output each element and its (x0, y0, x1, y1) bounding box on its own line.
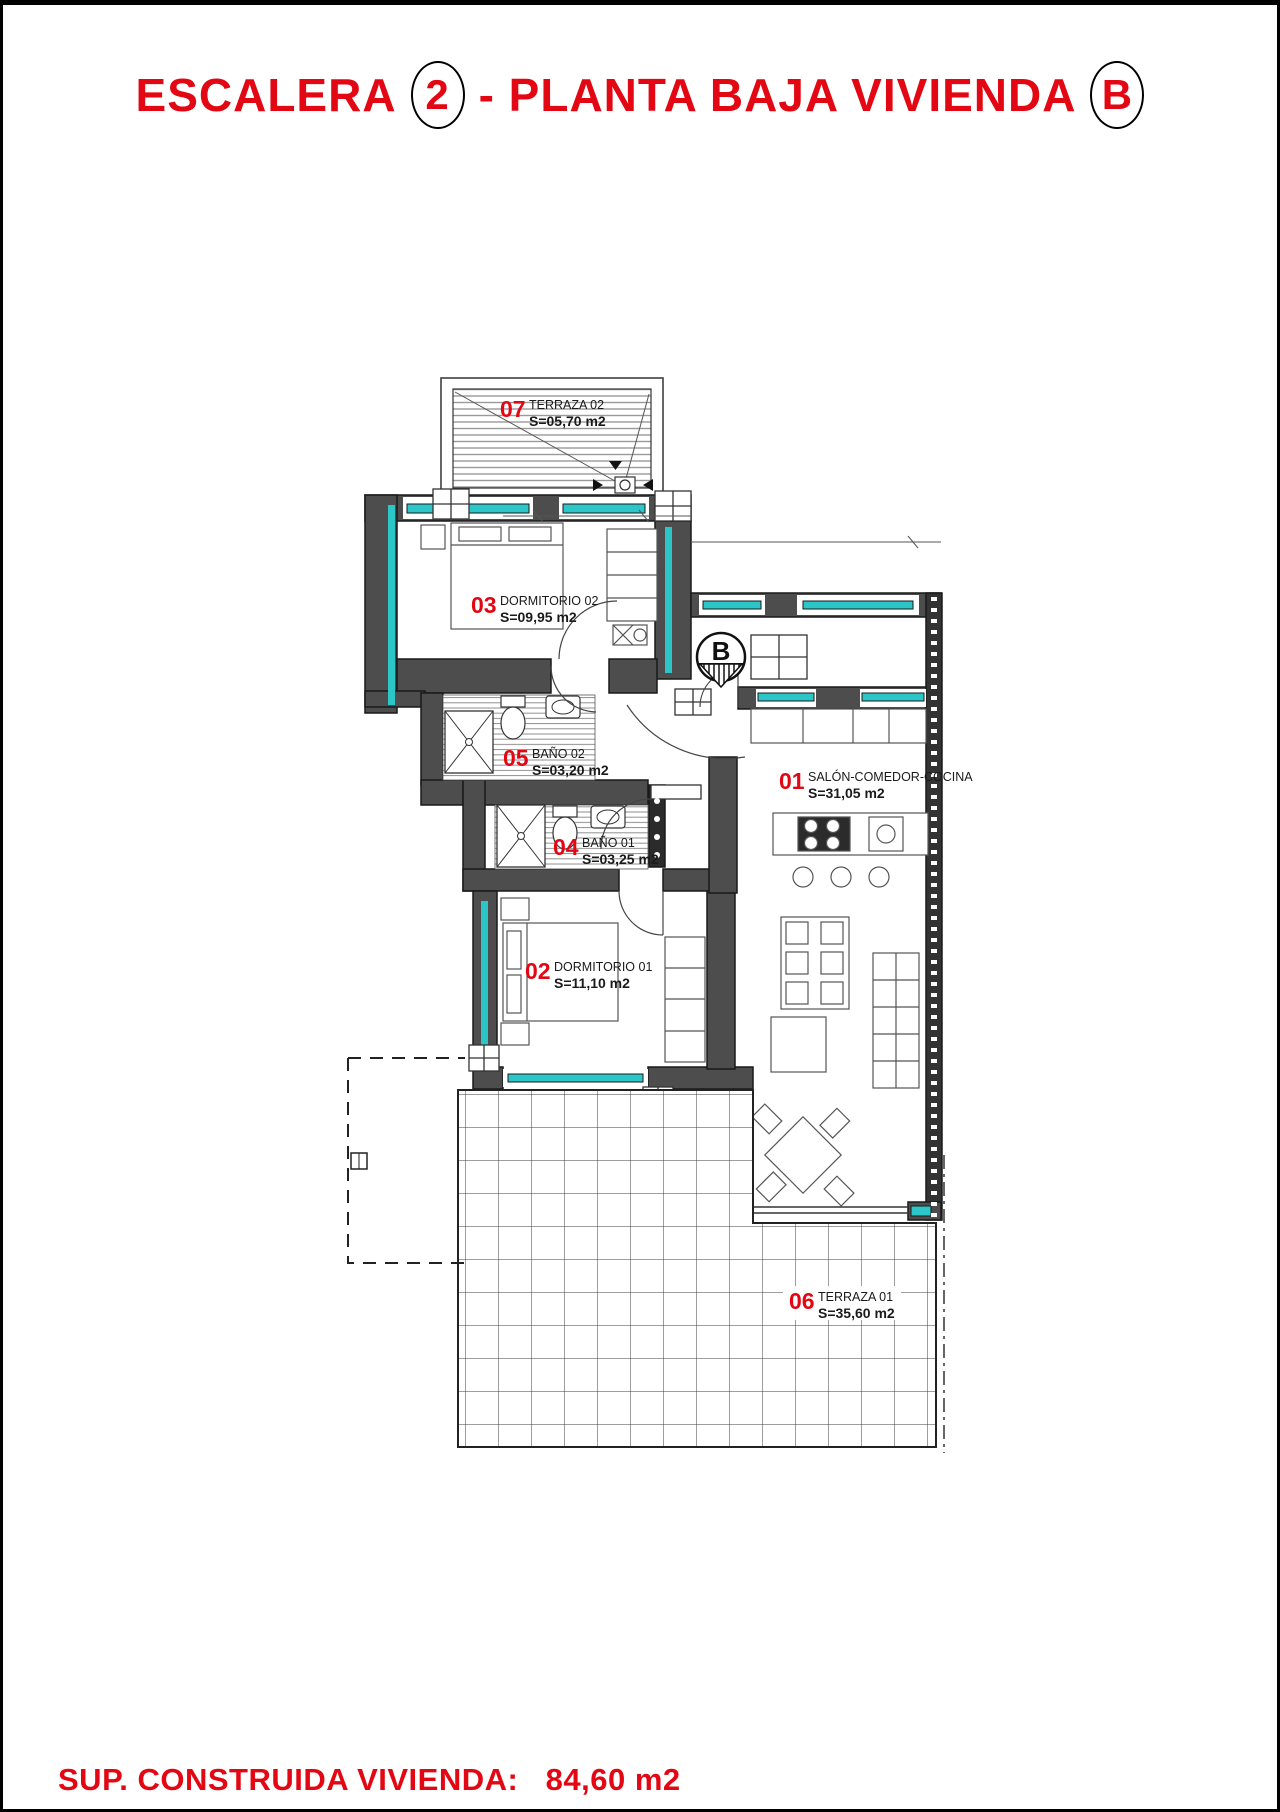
terraza-01 (458, 1090, 944, 1453)
wardrobe (665, 937, 705, 1062)
bar-stool (793, 867, 813, 887)
svg-text:DORMITORIO 02: DORMITORIO 02 (500, 594, 598, 608)
svg-text:03: 03 (471, 592, 497, 618)
toilet (501, 696, 525, 739)
svg-text:05: 05 (503, 745, 529, 771)
nightstand (501, 1023, 529, 1045)
door-leaf (651, 785, 701, 799)
shower-tray (445, 711, 493, 773)
boiler (613, 625, 647, 645)
dormitorio-02 (421, 523, 657, 659)
bar-stool (831, 867, 851, 887)
kitchen-counter (751, 709, 926, 743)
dining-set (781, 917, 849, 1009)
svg-text:06: 06 (789, 1288, 815, 1314)
svg-text:DORMITORIO 01: DORMITORIO 01 (554, 960, 652, 974)
dimension-lines (503, 510, 941, 548)
terraza-02 (441, 378, 663, 496)
svg-text:01: 01 (779, 768, 805, 794)
kitchen-island (773, 813, 928, 855)
entrance-marker-letter: B (712, 636, 731, 666)
svg-text:S=05,70 m2: S=05,70 m2 (529, 413, 606, 429)
door-arc (619, 891, 663, 935)
svg-text:S=11,10 m2: S=11,10 m2 (554, 975, 630, 991)
svg-text:02: 02 (525, 958, 551, 984)
svg-text:S=03,20 m2: S=03,20 m2 (532, 762, 609, 778)
area-summary: SUP. CONSTRUIDA VIVIENDA: 84,60 m2 P.P. … (58, 1687, 789, 1812)
svg-text:07: 07 (500, 396, 526, 422)
label-salon: 01 SALÓN-COMEDOR-COCINA S=31,05 m2 (779, 768, 973, 801)
svg-text:SALÓN-COMEDOR-COCINA: SALÓN-COMEDOR-COCINA (808, 769, 973, 784)
svg-text:S=35,60 m2: S=35,60 m2 (818, 1305, 895, 1321)
sink (869, 817, 903, 851)
nightstand (421, 525, 445, 549)
floor-plan-sheet: ESCALERA 2 - PLANTA BAJA VIVIENDA B (0, 0, 1280, 1812)
coffee-table (771, 1017, 826, 1072)
svg-text:TERRAZA 02: TERRAZA 02 (529, 398, 604, 412)
shower-tray (497, 805, 545, 867)
svg-text:BAÑO 01: BAÑO 01 (582, 836, 635, 850)
wardrobe (607, 529, 657, 621)
nightstand (501, 898, 529, 920)
built-area-line: SUP. CONSTRUIDA VIVIENDA: 84,60 m2 (58, 1761, 789, 1798)
svg-text:TERRAZA 01: TERRAZA 01 (818, 1290, 893, 1304)
svg-text:S=31,05 m2: S=31,05 m2 (808, 785, 885, 801)
bar-stool (869, 867, 889, 887)
svg-text:04: 04 (553, 834, 579, 860)
floor-plan-drawing: B 07 TERRAZA 02 S=05,70 m2 03 DORMITORIO… (3, 5, 1280, 1812)
sofa (873, 953, 919, 1088)
svg-text:S=09,95 m2: S=09,95 m2 (500, 609, 577, 625)
overhang-dashed-outline (348, 1058, 465, 1263)
svg-text:S=03,25 m2: S=03,25 m2 (582, 851, 659, 867)
svg-text:BAÑO 02: BAÑO 02 (532, 747, 585, 761)
